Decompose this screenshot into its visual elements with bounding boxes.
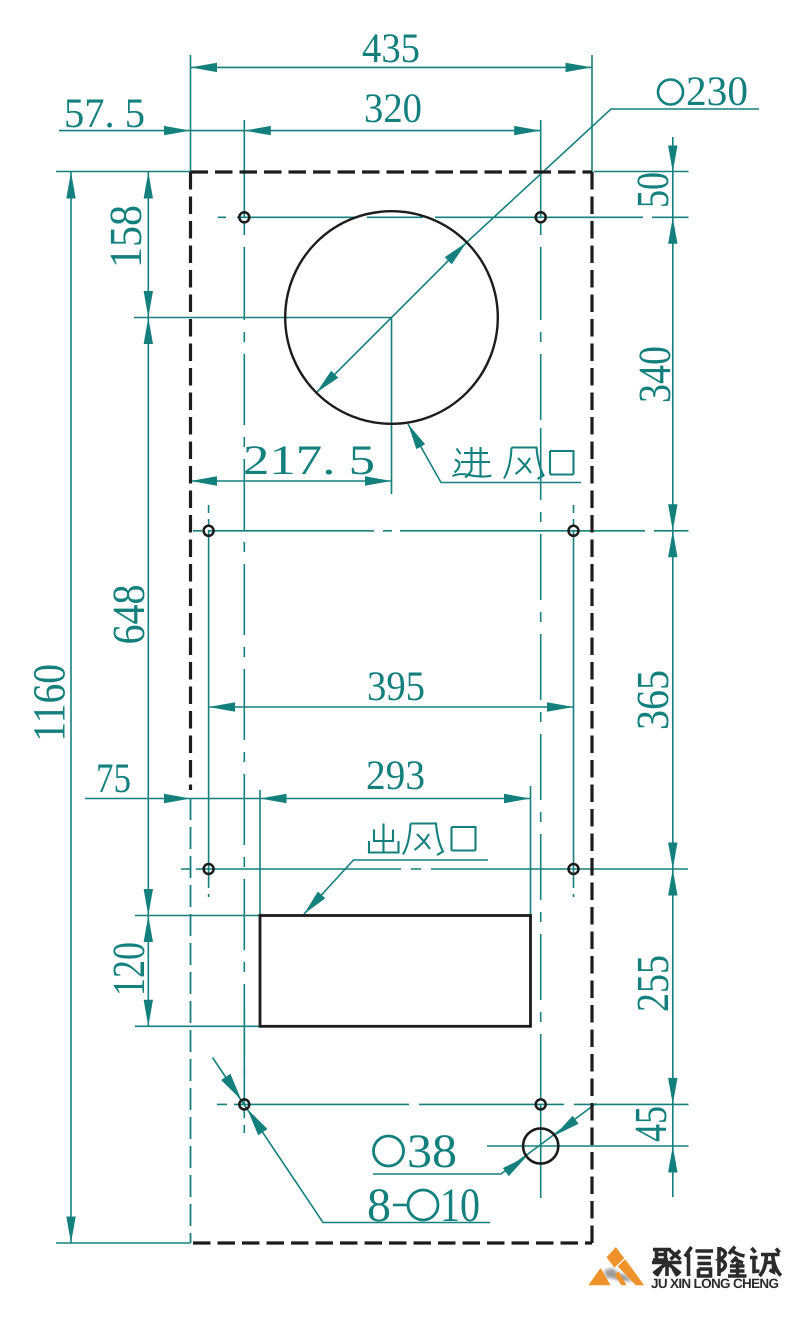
svg-text:75: 75 (96, 756, 131, 802)
svg-text:57. 5: 57. 5 (64, 91, 145, 137)
svg-text:255: 255 (627, 955, 678, 1012)
svg-text:340: 340 (629, 346, 680, 403)
svg-text:230: 230 (686, 69, 748, 115)
svg-text:120: 120 (103, 942, 154, 996)
svg-text:38: 38 (407, 1125, 457, 1178)
svg-text:320: 320 (364, 86, 422, 132)
svg-text:1160: 1160 (24, 664, 75, 742)
svg-text:435: 435 (362, 26, 420, 72)
svg-text:648: 648 (103, 585, 154, 645)
svg-text:158: 158 (100, 205, 151, 268)
svg-text:JU XIN LONG CHENG: JU XIN LONG CHENG (651, 1276, 779, 1291)
svg-text:50: 50 (627, 172, 678, 208)
svg-text:365: 365 (627, 670, 678, 730)
svg-text:8: 8 (367, 1179, 391, 1232)
svg-text:10: 10 (440, 1179, 480, 1232)
svg-text:293: 293 (366, 753, 425, 799)
svg-text:395: 395 (367, 664, 425, 710)
svg-text:45: 45 (625, 1106, 676, 1142)
svg-text:217. 5: 217. 5 (243, 438, 375, 484)
